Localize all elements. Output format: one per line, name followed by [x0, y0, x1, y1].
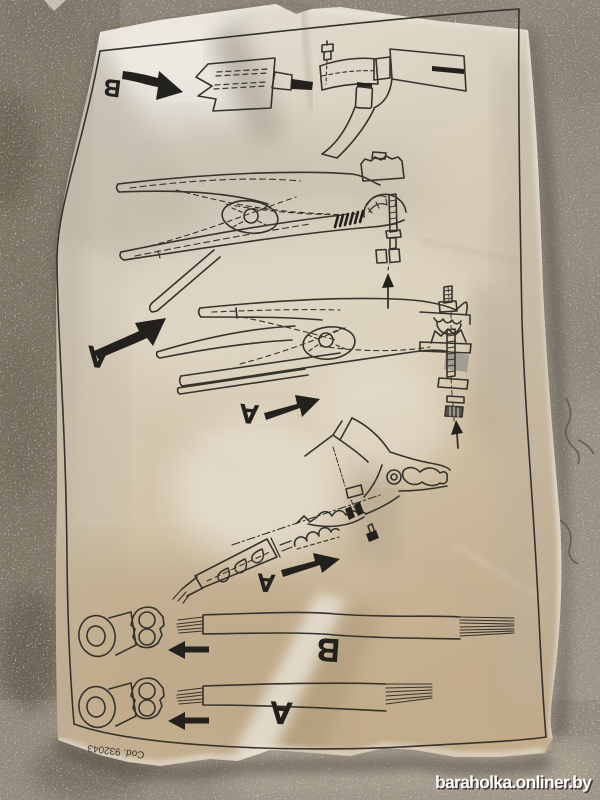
svg-text:baraholka.onliner.by: baraholka.onliner.by — [435, 772, 592, 792]
